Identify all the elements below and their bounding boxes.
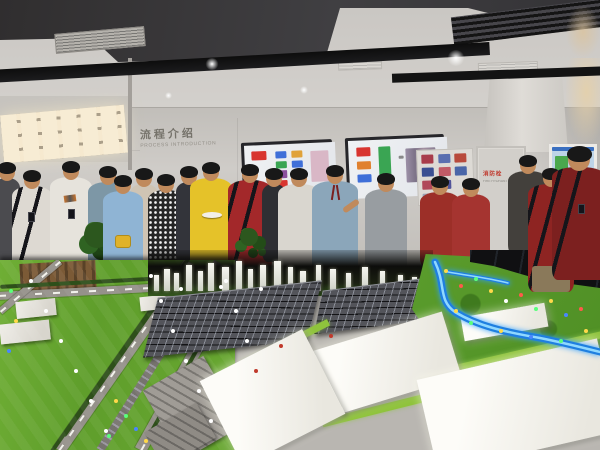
photo-exhibition-hall: 流程介绍 PROCESS INTRODUCTION — [0, 0, 600, 450]
warm-light-glow — [566, 6, 600, 58]
potted-plant — [240, 228, 258, 246]
side-room-alcove — [0, 96, 130, 162]
model-led-lights — [0, 250, 2, 252]
downlight — [300, 86, 308, 94]
light-panel-grid — [0, 105, 128, 164]
model-river — [0, 250, 600, 450]
pillar — [484, 74, 568, 152]
spotlight — [447, 50, 465, 66]
visitor-19 — [552, 148, 600, 280]
spotlight — [205, 58, 219, 70]
downlight — [165, 92, 172, 99]
scale-model — [0, 250, 600, 450]
